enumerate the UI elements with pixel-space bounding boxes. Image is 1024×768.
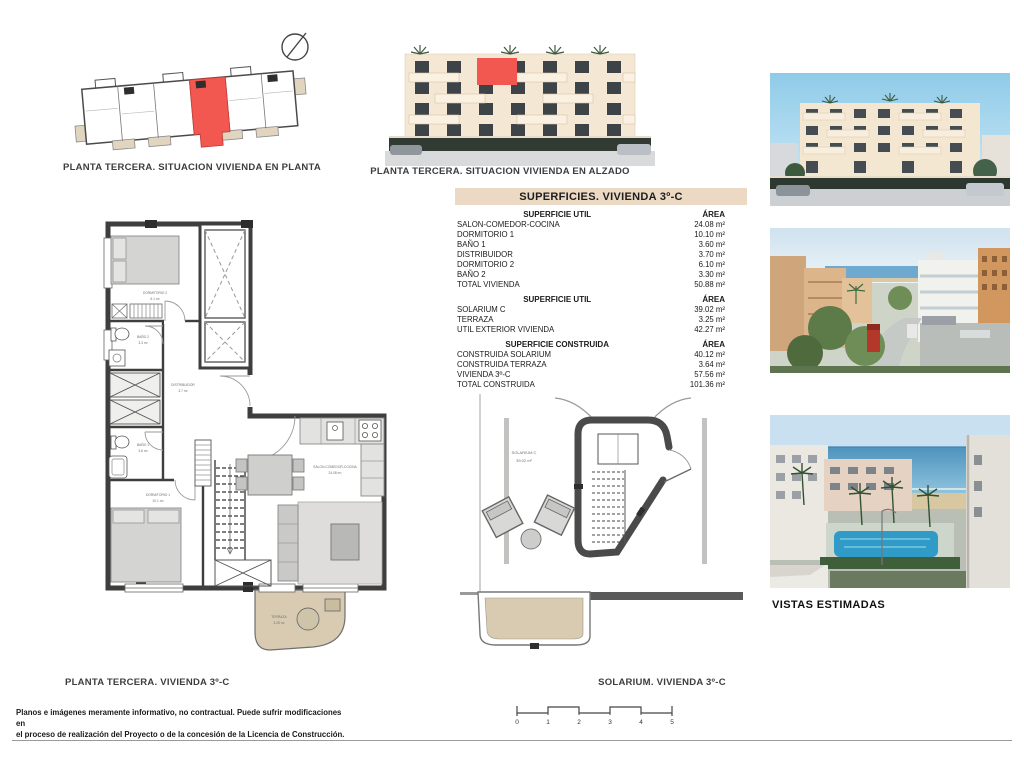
building-footprint xyxy=(71,62,310,158)
row-value: 3.64 m² xyxy=(659,360,747,370)
row-label: DORMITORIO 2 xyxy=(455,260,659,270)
table-row: DISTRIBUIDOR3.70 m² xyxy=(455,250,747,260)
table-section-util-2: SUPERFICIE UTIL ÁREA SOLARIUM C39.02 m² … xyxy=(455,294,747,335)
solarium-plan-drawing: SOLARIUM C 39.02 m² xyxy=(458,392,745,660)
table-section-util-1: SUPERFICIE UTIL ÁREA SALON-COMEDOR-COCIN… xyxy=(455,209,747,290)
road xyxy=(385,151,655,166)
row-label: TERRAZA xyxy=(455,315,659,325)
svg-text:5: 5 xyxy=(670,719,674,726)
plan-sheet: PLANTA TERCERA. SITUACION VIVIENDA EN PL… xyxy=(0,0,1024,768)
area-header: ÁREA xyxy=(659,339,747,350)
row-value: 3.70 m² xyxy=(659,250,747,260)
svg-text:DORMITORIO 1: DORMITORIO 1 xyxy=(146,493,170,497)
row-label: VIVIENDA 3º-C xyxy=(455,370,659,380)
scale-bar: 0 1 2 3 4 5 xyxy=(512,699,677,726)
svg-text:BAÑO 1: BAÑO 1 xyxy=(137,442,149,447)
armchair xyxy=(534,495,574,535)
svg-text:0: 0 xyxy=(515,719,519,726)
area-header: ÁREA xyxy=(659,294,747,305)
table-row: DORMITORIO 110.10 m² xyxy=(455,230,747,240)
table-row: CONSTRUIDA TERRAZA3.64 m² xyxy=(455,360,747,370)
jacuzzi xyxy=(460,592,743,649)
row-label: UTIL EXTERIOR VIVIENDA xyxy=(455,325,659,335)
section-header: SUPERFICIE UTIL xyxy=(455,294,659,305)
svg-text:4: 4 xyxy=(639,719,643,726)
photo-street-aerial-view xyxy=(770,228,1010,373)
table-row: TOTAL CONSTRUIDA101.36 m² xyxy=(455,380,747,390)
highlighted-unit-elevation xyxy=(477,58,517,85)
disclaimer-line1: Planos e imágenes meramente informativo,… xyxy=(16,708,352,730)
floor-plan-drawing: TERRAZA 3.25 m² xyxy=(103,218,390,660)
row-label: BAÑO 2 xyxy=(455,270,659,280)
table-row: BAÑO 13.60 m² xyxy=(455,240,747,250)
section-header: SUPERFICIE CONSTRUIDA xyxy=(455,339,659,350)
svg-text:3.6 m²: 3.6 m² xyxy=(138,449,148,453)
surfaces-table: SUPERFICIES. VIVIENDA 3º-C SUPERFICIE UT… xyxy=(455,188,747,390)
svg-text:TERRAZA: TERRAZA xyxy=(271,615,287,619)
photo-sea-view xyxy=(770,415,1010,588)
svg-text:BAÑO 2: BAÑO 2 xyxy=(137,334,149,339)
row-value: 3.60 m² xyxy=(659,240,747,250)
svg-text:DORMITORIO 2: DORMITORIO 2 xyxy=(143,291,167,295)
parapet-right xyxy=(702,418,707,564)
surfaces-table-title: SUPERFICIES. VIVIENDA 3º-C xyxy=(455,188,747,205)
disclaimer-text: Planos e imágenes meramente informativo,… xyxy=(16,708,352,741)
solarium-caption: SOLARIUM. VIVIENDA 3º-C xyxy=(553,677,771,688)
row-value: 24.08 m² xyxy=(659,220,747,230)
table-row: TERRAZA3.25 m² xyxy=(455,315,747,325)
row-label: DORMITORIO 1 xyxy=(455,230,659,240)
elevator-shafts xyxy=(200,224,250,368)
row-value: 39.02 m² xyxy=(659,305,747,315)
area-header: ÁREA xyxy=(659,209,747,220)
elevation-drawing xyxy=(385,38,655,166)
row-value: 50.88 m² xyxy=(659,280,747,290)
key-plan-caption: PLANTA TERCERA. SITUACION VIVIENDA EN PL… xyxy=(63,162,317,173)
row-value: 101.36 m² xyxy=(659,380,747,390)
row-label: TOTAL VIVIENDA xyxy=(455,280,659,290)
table-row: SOLARIUM C39.02 m² xyxy=(455,305,747,315)
table-row: DORMITORIO 26.10 m² xyxy=(455,260,747,270)
table-row: VIVIENDA 3º-C57.56 m² xyxy=(455,370,747,380)
row-value: 6.10 m² xyxy=(659,260,747,270)
north-arrow-icon xyxy=(282,33,308,60)
svg-text:10.1 m²: 10.1 m² xyxy=(152,499,164,503)
armchair xyxy=(482,497,523,538)
radiator xyxy=(195,440,211,486)
stair-enclosure xyxy=(555,398,691,554)
row-label: SOLARIUM C xyxy=(455,305,659,315)
row-label: DISTRIBUIDOR xyxy=(455,250,659,260)
table-row: TOTAL VIVIENDA50.88 m² xyxy=(455,280,747,290)
svg-text:3.7 m²: 3.7 m² xyxy=(178,389,188,393)
svg-text:1: 1 xyxy=(546,719,550,726)
svg-text:DISTRIBUIDOR: DISTRIBUIDOR xyxy=(171,383,195,387)
row-value: 40.12 m² xyxy=(659,350,747,360)
svg-text:2: 2 xyxy=(577,719,581,726)
svg-text:SOLARIUM C: SOLARIUM C xyxy=(512,450,537,455)
photo-building-render xyxy=(770,73,1010,206)
views-caption: VISTAS ESTIMADAS xyxy=(772,599,885,611)
svg-text:39.02 m²: 39.02 m² xyxy=(516,458,532,463)
elevation-caption: PLANTA TERCERA. SITUACION VIVIENDA EN AL… xyxy=(340,166,660,177)
row-value: 3.30 m² xyxy=(659,270,747,280)
section-header: SUPERFICIE UTIL xyxy=(455,209,659,220)
svg-text:3.25 m²: 3.25 m² xyxy=(273,621,285,625)
row-label: SALON-COMEDOR-COCINA xyxy=(455,220,659,230)
row-label: TOTAL CONSTRUIDA xyxy=(455,380,659,390)
key-plan-drawing xyxy=(70,30,320,160)
side-table xyxy=(521,529,541,549)
floor-plan-caption: PLANTA TERCERA. VIVIENDA 3º-C xyxy=(65,677,230,688)
row-value: 10.10 m² xyxy=(659,230,747,240)
table-row: CONSTRUIDA SOLARIUM40.12 m² xyxy=(455,350,747,360)
svg-text:24.08 m²: 24.08 m² xyxy=(328,471,342,475)
row-label: BAÑO 1 xyxy=(455,240,659,250)
svg-text:6.1 m²: 6.1 m² xyxy=(150,297,160,301)
roof-palms xyxy=(411,45,609,54)
svg-text:SALON-COMEDOR-COCINA: SALON-COMEDOR-COCINA xyxy=(313,465,357,469)
table-row: BAÑO 23.30 m² xyxy=(455,270,747,280)
bottom-rule xyxy=(12,740,1012,741)
row-label: CONSTRUIDA TERRAZA xyxy=(455,360,659,370)
row-label: CONSTRUIDA SOLARIUM xyxy=(455,350,659,360)
table-row: SALON-COMEDOR-COCINA24.08 m² xyxy=(455,220,747,230)
row-value: 57.56 m² xyxy=(659,370,747,380)
svg-text:3: 3 xyxy=(608,719,612,726)
terrace: TERRAZA 3.25 m² xyxy=(255,590,345,650)
row-value: 42.27 m² xyxy=(659,325,747,335)
parapet-left xyxy=(504,418,509,564)
row-value: 3.25 m² xyxy=(659,315,747,325)
svg-text:3.3 m²: 3.3 m² xyxy=(138,341,148,345)
table-section-construida: SUPERFICIE CONSTRUIDA ÁREA CONSTRUIDA SO… xyxy=(455,339,747,390)
sofa-living xyxy=(278,502,382,584)
table-row: UTIL EXTERIOR VIVIENDA42.27 m² xyxy=(455,325,747,335)
hedge xyxy=(389,138,651,151)
